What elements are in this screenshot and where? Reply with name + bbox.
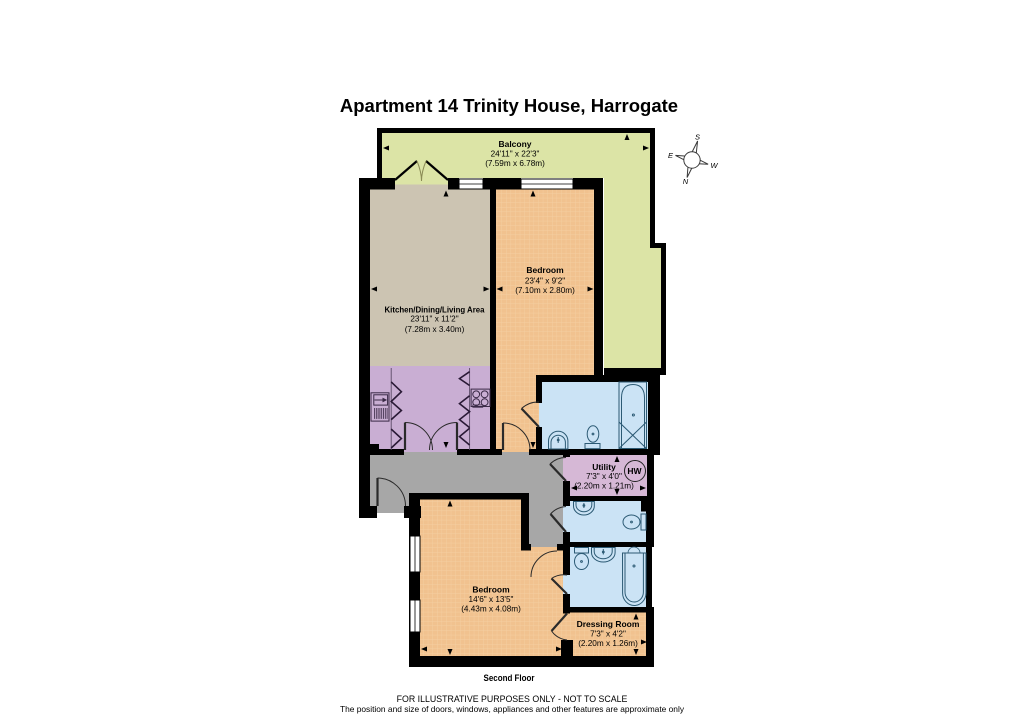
svg-text:24'11" x 22'3": 24'11" x 22'3"	[491, 150, 540, 159]
svg-text:The position and size of doors: The position and size of doors, windows,…	[340, 704, 685, 714]
svg-text:W: W	[710, 161, 718, 170]
svg-text:S: S	[695, 133, 700, 142]
svg-text:23'4" x 9'2": 23'4" x 9'2"	[525, 277, 565, 286]
svg-text:Bedroom: Bedroom	[472, 585, 510, 595]
svg-text:(4.43m x 4.08m): (4.43m x 4.08m)	[461, 605, 521, 614]
svg-text:Apartment 14 Trinity House, Ha: Apartment 14 Trinity House, Harrogate	[340, 95, 678, 116]
svg-text:(2.20m x 1.26m): (2.20m x 1.26m)	[578, 639, 638, 648]
svg-text:(7.28m x 3.40m): (7.28m x 3.40m)	[405, 325, 465, 334]
svg-text:7'3" x 4'2": 7'3" x 4'2"	[590, 630, 626, 639]
svg-text:(7.59m x 6.78m): (7.59m x 6.78m)	[485, 159, 545, 168]
svg-text:14'6" x 13'5": 14'6" x 13'5"	[469, 595, 514, 604]
svg-text:7'3" x 4'0": 7'3" x 4'0"	[586, 472, 622, 481]
svg-text:Kitchen/Dining/Living Area: Kitchen/Dining/Living Area	[385, 305, 485, 315]
svg-text:Balcony: Balcony	[498, 139, 531, 149]
svg-text:Bedroom: Bedroom	[526, 265, 564, 275]
svg-text:HW: HW	[627, 466, 642, 476]
svg-text:23'11" x 11'2": 23'11" x 11'2"	[410, 315, 458, 324]
svg-text:Second Floor: Second Floor	[484, 673, 535, 683]
svg-text:N: N	[683, 177, 689, 186]
svg-text:(2.20m x 1.21m): (2.20m x 1.21m)	[574, 481, 634, 490]
svg-text:Dressing Room: Dressing Room	[577, 619, 640, 629]
svg-text:Utility: Utility	[592, 462, 616, 472]
svg-text:FOR ILLUSTRATIVE PURPOSES ONLY: FOR ILLUSTRATIVE PURPOSES ONLY - NOT TO …	[397, 694, 628, 704]
svg-text:(7.10m x 2.80m): (7.10m x 2.80m)	[515, 286, 575, 295]
